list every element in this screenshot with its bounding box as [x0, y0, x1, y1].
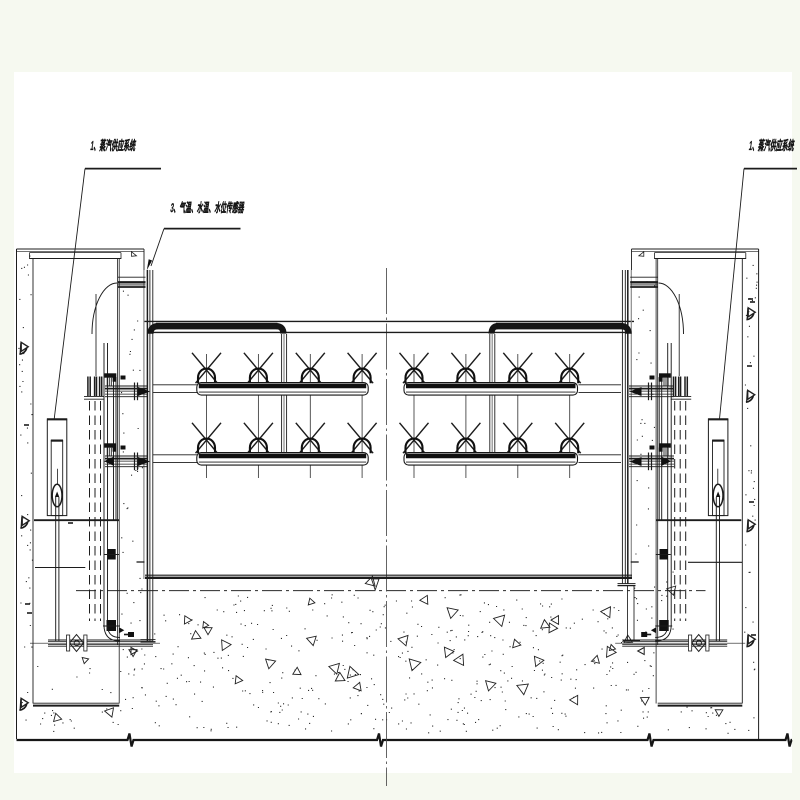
svg-text:1、蒸汽供应系统: 1、蒸汽供应系统	[89, 137, 136, 154]
svg-text:1、蒸汽供应系统: 1、蒸汽供应系统	[748, 137, 795, 154]
svg-text:3、气温、水温、水位传感器: 3、气温、水温、水位传感器	[169, 199, 245, 216]
